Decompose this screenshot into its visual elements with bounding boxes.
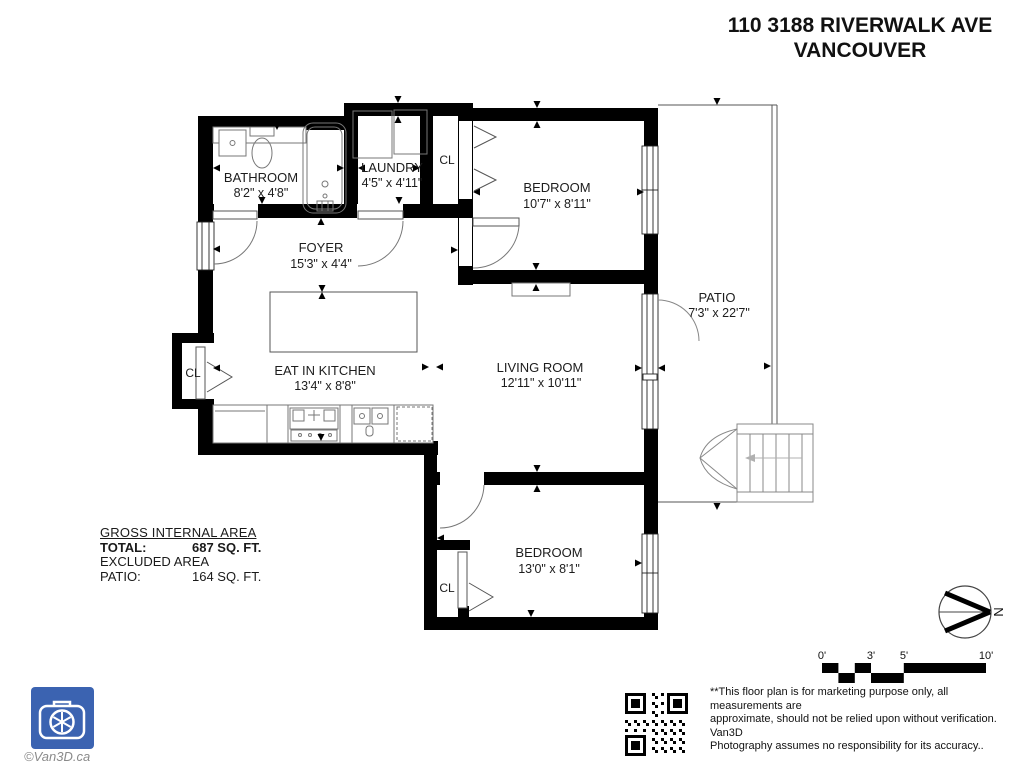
- bedroom-bottom-label: BEDROOM: [515, 545, 582, 560]
- scale-bar: 0' 3' 5' 10': [818, 650, 993, 683]
- closet-top-label: CL: [439, 153, 455, 167]
- scale-3: 3': [867, 650, 875, 662]
- floor-plan-page: 110 3188 RIVERWALK AVE VANCOUVER GROSS I…: [0, 0, 1024, 768]
- compass-icon: N: [939, 586, 1006, 638]
- scale-10: 10': [979, 650, 993, 662]
- closet-bottom-label: CL: [439, 581, 455, 595]
- bathroom-dims: 8'2" x 4'8": [234, 186, 289, 200]
- foyer-label: FOYER: [299, 240, 344, 255]
- north-label: N: [991, 607, 1006, 616]
- closet-left-label: CL: [185, 366, 201, 380]
- bedroom-top-dims: 10'7" x 8'11": [523, 197, 591, 211]
- kitchen-label: EAT IN KITCHEN: [274, 363, 375, 378]
- laundry-fixtures: [353, 110, 427, 158]
- patio-label: PATIO: [698, 290, 735, 305]
- van3d-logo: [31, 687, 94, 749]
- living-room-niche: [512, 283, 570, 296]
- foyer-dims: 15'3" x 4'4": [290, 257, 352, 271]
- kitchen-dims: 13'4" x 8'8": [294, 379, 356, 393]
- living-room-dims: 12'11" x 10'11": [501, 376, 582, 390]
- laundry-label: LAUNDRY: [361, 160, 423, 175]
- bedroom-bottom-dims: 13'0" x 8'1": [518, 562, 580, 576]
- scale-0: 0': [818, 650, 826, 662]
- bathroom-label: BATHROOM: [224, 170, 298, 185]
- qr-code: [621, 689, 692, 760]
- patio-dims: 7'3" x 22'7": [688, 306, 750, 320]
- floor-plan-svg: BATHROOM 8'2" x 4'8" LAUNDRY 4'5" x 4'11…: [0, 0, 1024, 768]
- scale-5: 5': [900, 650, 908, 662]
- living-room-label: LIVING ROOM: [497, 360, 584, 375]
- bedroom-top-label: BEDROOM: [523, 180, 590, 195]
- laundry-dims: 4'5" x 4'11": [362, 176, 423, 190]
- patio-stairs: [700, 424, 813, 502]
